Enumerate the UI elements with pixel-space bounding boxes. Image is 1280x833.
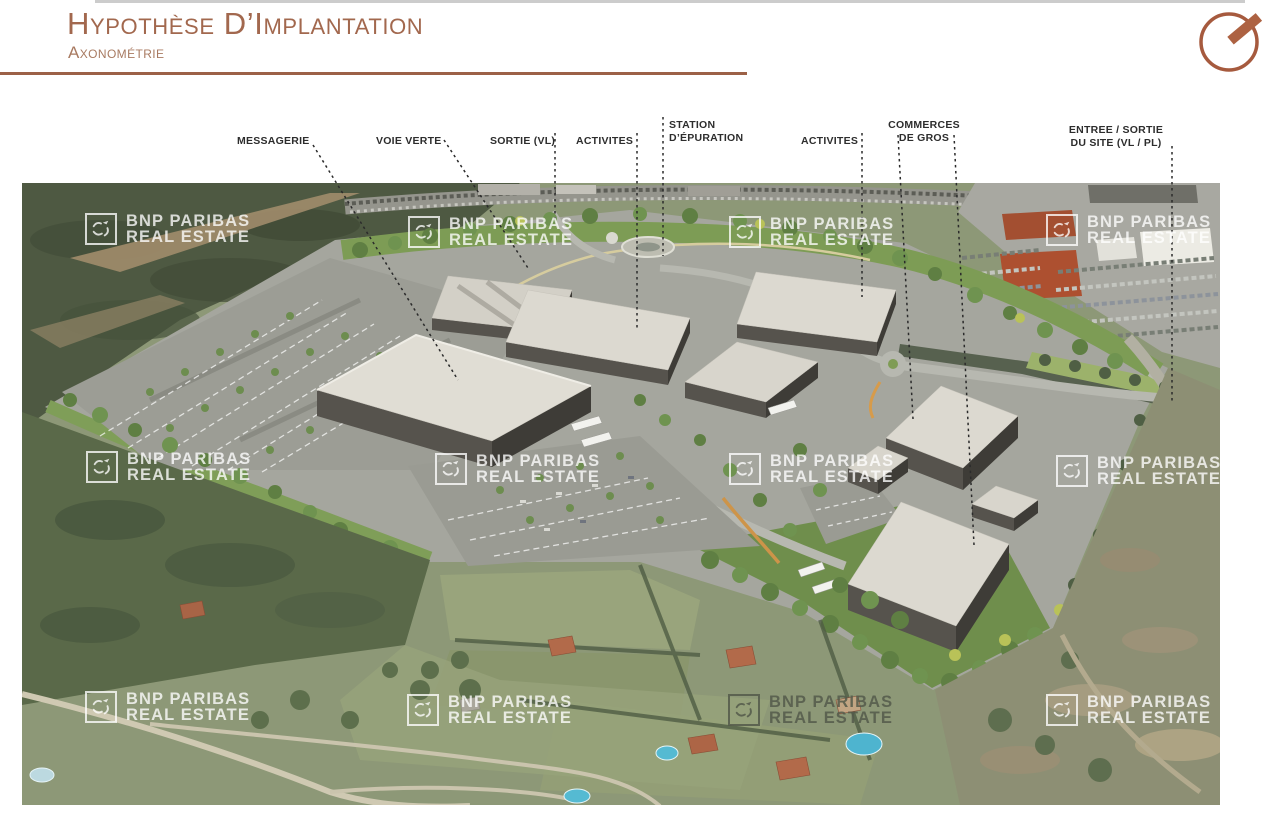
label-text: COMMERCES [876, 119, 972, 132]
label-text: SORTIE (VL) [490, 135, 555, 148]
label-text: ACTIVITES [576, 135, 633, 148]
label-text: ENTREE / SORTIE [1064, 124, 1168, 137]
label-text: ACTIVITES [801, 135, 858, 148]
roundabout [880, 351, 906, 377]
label-text: DU SITE (VL / PL) [1064, 137, 1168, 150]
label-commerces-de-gros: COMMERCES DE GROS [876, 119, 972, 145]
label-text: VOIE VERTE [376, 135, 442, 148]
slide-page: Hypothèse D’Implantation Axonométrie [0, 0, 1280, 833]
label-voie-verte: VOIE VERTE [376, 135, 442, 148]
label-activites-1: ACTIVITES [576, 135, 633, 148]
label-sortie-vl: SORTIE (VL) [490, 135, 555, 148]
label-station-epuration: STATION D’ÉPURATION [669, 119, 743, 145]
aerial-photo [22, 183, 1225, 807]
label-activites-2: ACTIVITES [801, 135, 858, 148]
label-text: MESSAGERIE [237, 135, 310, 148]
label-messagerie: MESSAGERIE [237, 135, 310, 148]
label-text: DE GROS [876, 132, 972, 145]
label-text: STATION [669, 119, 743, 132]
label-entree-sortie: ENTREE / SORTIE DU SITE (VL / PL) [1064, 124, 1168, 150]
label-text: D’ÉPURATION [669, 132, 743, 145]
